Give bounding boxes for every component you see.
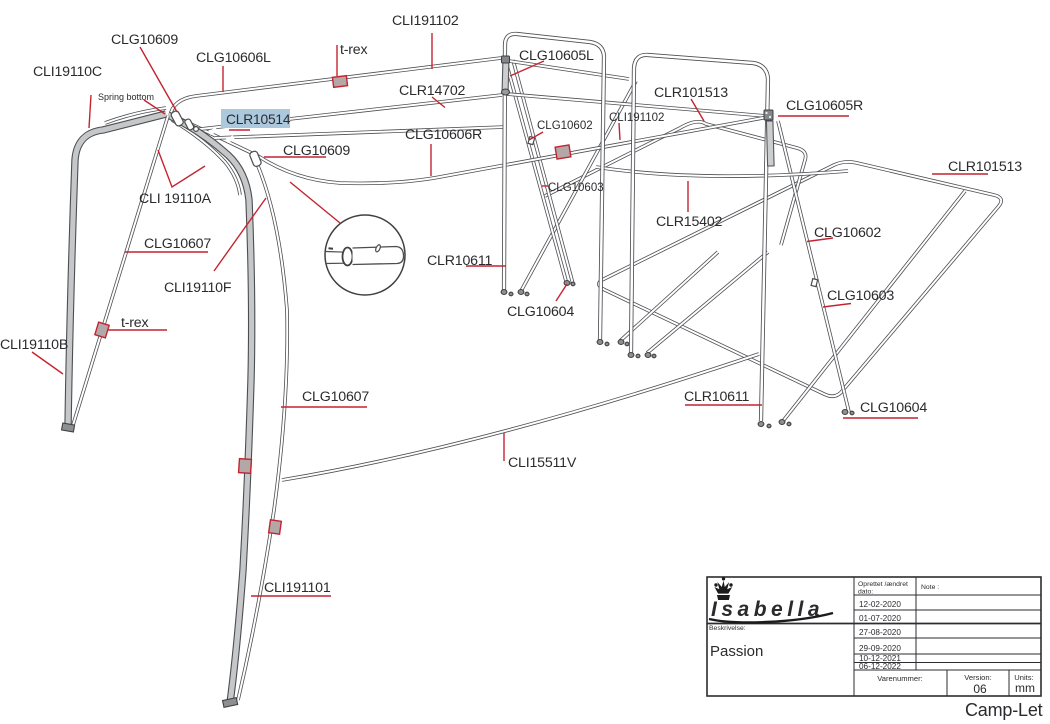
svg-text:CLR101513: CLR101513	[948, 159, 1022, 175]
svg-text:CLI19110F: CLI19110F	[164, 280, 232, 296]
svg-text:27-08-2020: 27-08-2020	[859, 628, 901, 637]
svg-text:t-rex: t-rex	[121, 315, 148, 331]
svg-text:CLG10609: CLG10609	[283, 143, 350, 159]
svg-text:CLG10606R: CLG10606R	[405, 127, 482, 143]
svg-text:CLG10605R: CLG10605R	[786, 98, 863, 114]
svg-text:CLG10604: CLG10604	[860, 400, 927, 416]
svg-text:Note :: Note :	[921, 584, 939, 591]
svg-text:CLI15511V: CLI15511V	[508, 455, 577, 471]
svg-text:06: 06	[973, 682, 987, 696]
svg-text:CLG10609: CLG10609	[111, 32, 178, 48]
svg-text:CLG10602: CLG10602	[814, 225, 881, 241]
svg-text:29-09-2020: 29-09-2020	[859, 644, 901, 653]
svg-text:CLG10603: CLG10603	[548, 182, 604, 194]
svg-text:CLG10606L: CLG10606L	[196, 50, 271, 66]
svg-text:CLR15402: CLR15402	[656, 214, 723, 230]
svg-text:Beskrivelse:: Beskrivelse:	[709, 625, 746, 632]
svg-text:CLR14702: CLR14702	[399, 83, 466, 99]
svg-text:CLI191102: CLI191102	[392, 13, 459, 29]
svg-text:CLG10604: CLG10604	[507, 304, 574, 320]
svg-text:Oprettet /ændret: Oprettet /ændret	[858, 581, 908, 588]
svg-text:t-rex: t-rex	[340, 42, 367, 58]
svg-text:CLG10607: CLG10607	[144, 236, 211, 252]
svg-text:Version:: Version:	[964, 673, 991, 682]
svg-text:CLR10611: CLR10611	[684, 389, 749, 405]
svg-text:CLG10605L: CLG10605L	[519, 48, 594, 64]
svg-text:Passion: Passion	[710, 643, 763, 660]
svg-text:01-07-2020: 01-07-2020	[859, 614, 901, 623]
svg-text:CLG10607: CLG10607	[302, 389, 369, 405]
svg-text:CLI19110B: CLI19110B	[0, 337, 68, 353]
svg-text:Camp-Let: Camp-Let	[965, 700, 1043, 720]
svg-text:CLR101513: CLR101513	[654, 85, 728, 101]
svg-text:12-02-2020: 12-02-2020	[859, 600, 901, 609]
svg-text:06-12-2022: 06-12-2022	[859, 662, 901, 671]
svg-text:Varenummer:: Varenummer:	[877, 674, 922, 683]
svg-text:CLR10611: CLR10611	[427, 253, 492, 269]
svg-text:CLI 19110A: CLI 19110A	[139, 191, 212, 207]
svg-text:CLG10602: CLG10602	[537, 120, 593, 132]
svg-text:CLR10514: CLR10514	[226, 112, 291, 127]
svg-text:dato:: dato:	[858, 589, 873, 596]
svg-text:CLI19110C: CLI19110C	[33, 64, 102, 80]
svg-text:mm: mm	[1015, 681, 1035, 695]
svg-text:CLI191102: CLI191102	[609, 112, 664, 124]
svg-text:Spring bottom: Spring bottom	[98, 92, 154, 102]
svg-text:CLG10603: CLG10603	[827, 288, 894, 304]
svg-text:CLI191101: CLI191101	[264, 580, 331, 596]
